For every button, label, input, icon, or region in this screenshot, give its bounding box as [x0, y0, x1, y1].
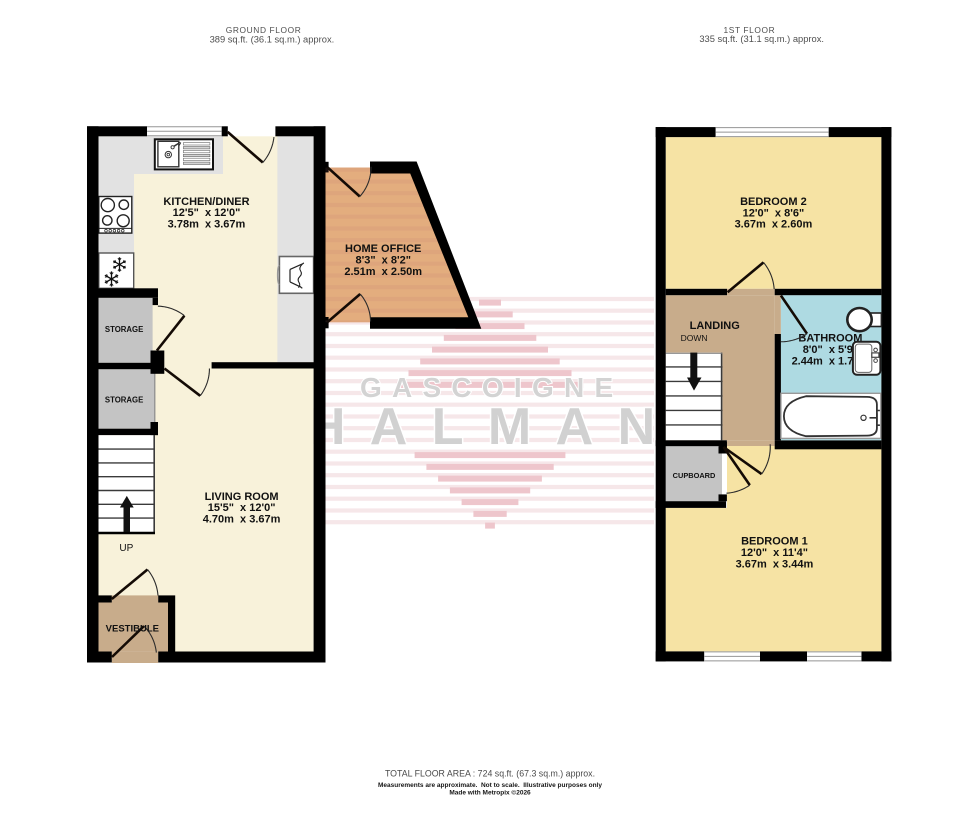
- svg-text:12'0" x 11'4": 12'0" x 11'4": [741, 547, 808, 559]
- svg-text:BEDROOM 1: BEDROOM 1: [741, 536, 808, 548]
- svg-text:TOTAL FLOOR AREA : 724 sq.ft.: TOTAL FLOOR AREA : 724 sq.ft. (67.3 sq.m…: [385, 769, 595, 779]
- svg-text:2.51m x 2.50m: 2.51m x 2.50m: [344, 266, 422, 278]
- svg-text:CUPBOARD: CUPBOARD: [673, 471, 716, 480]
- svg-text:4.70m x 3.67m: 4.70m x 3.67m: [203, 513, 281, 525]
- svg-text:8'3" x 8'2": 8'3" x 8'2": [355, 254, 410, 266]
- svg-text:HOME OFFICE: HOME OFFICE: [345, 243, 421, 255]
- svg-text:Made with Metropix ©2026: Made with Metropix ©2026: [449, 788, 531, 796]
- svg-text:BATHROOM: BATHROOM: [798, 333, 862, 345]
- svg-text:KITCHEN/DINER: KITCHEN/DINER: [163, 196, 249, 208]
- svg-text:3.67m x 2.60m: 3.67m x 2.60m: [735, 219, 813, 231]
- svg-text:Measurements are approximate.: Measurements are approximate. Not to sca…: [378, 782, 602, 789]
- svg-text:DOWN: DOWN: [681, 333, 708, 343]
- svg-text:3.67m x 3.44m: 3.67m x 3.44m: [736, 558, 814, 570]
- svg-text:15'5" x 12'0": 15'5" x 12'0": [208, 502, 276, 514]
- svg-text:VESTIBULE: VESTIBULE: [106, 623, 159, 634]
- svg-text:8'0" x 5'9": 8'0" x 5'9": [803, 344, 858, 356]
- svg-text:3.78m x 3.67m: 3.78m x 3.67m: [168, 219, 246, 231]
- svg-text:335 sq.ft. (31.1 sq.m.) approx: 335 sq.ft. (31.1 sq.m.) approx.: [699, 34, 824, 44]
- svg-text:STORAGE: STORAGE: [105, 396, 143, 405]
- svg-text:12'0" x 8'6": 12'0" x 8'6": [743, 208, 805, 220]
- svg-text:12'5" x 12'0": 12'5" x 12'0": [173, 207, 241, 219]
- svg-text:STORAGE: STORAGE: [105, 325, 143, 334]
- svg-text:LANDING: LANDING: [690, 320, 740, 332]
- svg-text:389 sq.ft. (36.1 sq.m.) approx: 389 sq.ft. (36.1 sq.m.) approx.: [210, 35, 335, 45]
- svg-text:HALMAN: HALMAN: [308, 398, 680, 456]
- svg-text:BEDROOM 2: BEDROOM 2: [740, 196, 807, 208]
- svg-text:UP: UP: [119, 543, 133, 554]
